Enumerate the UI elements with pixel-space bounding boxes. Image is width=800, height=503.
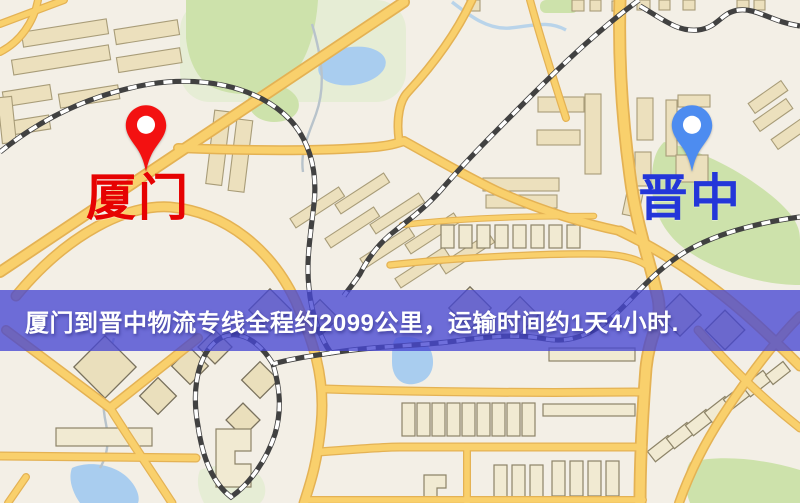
map-screenshot: 厦门 晋中 厦门到晋中物流专线全程约2099公里，运输时间约1天4小时.	[0, 0, 800, 503]
route-info-banner: 厦门到晋中物流专线全程约2099公里，运输时间约1天4小时.	[0, 290, 800, 351]
bottom-row-2	[494, 461, 619, 497]
origin-label: 厦门	[86, 173, 190, 223]
bottom-row-1	[402, 403, 535, 436]
destination-label: 晋中	[638, 173, 742, 223]
map-canvas[interactable]	[0, 0, 800, 503]
route-info-text: 厦门到晋中物流专线全程约2099公里，运输时间约1天4小时.	[25, 303, 679, 338]
origin-pin-icon[interactable]	[122, 104, 170, 173]
destination-pin-icon[interactable]	[668, 104, 716, 173]
